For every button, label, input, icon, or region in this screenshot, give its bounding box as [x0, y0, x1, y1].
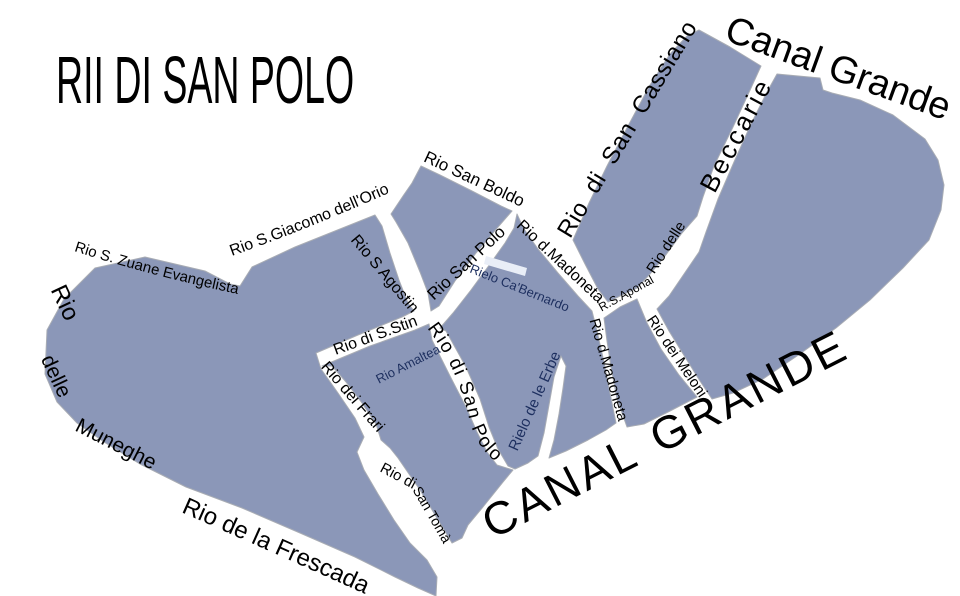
map-canvas: Rio S.Giacomo dell'OrioRio S. Zuane Evan… [0, 0, 960, 596]
san-polo-rii-map: RII DI SAN POLO Rio S.Giacomo dell'OrioR… [0, 0, 960, 596]
